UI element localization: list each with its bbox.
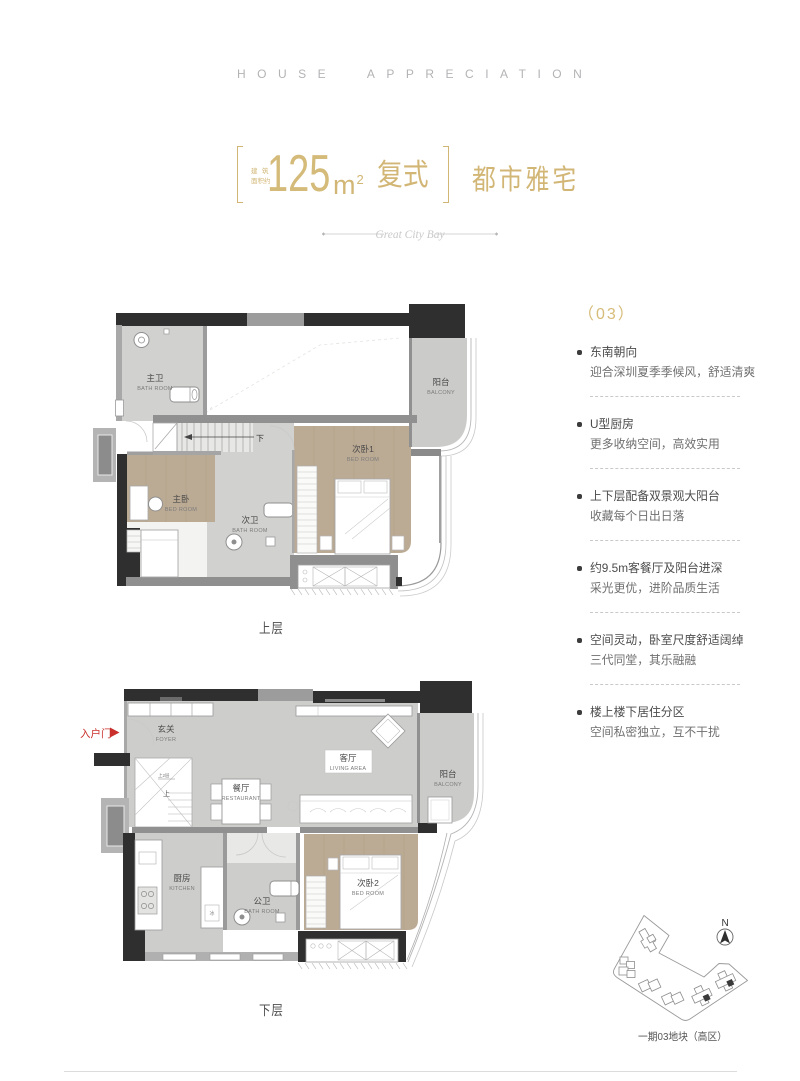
svg-text:Great City Bay: Great City Bay bbox=[375, 229, 445, 241]
svg-text:BATH ROOM: BATH ROOM bbox=[244, 909, 280, 915]
svg-text:入户门: 入户门 bbox=[80, 727, 112, 740]
svg-text:BALCONY: BALCONY bbox=[427, 390, 455, 396]
svg-text:上: 上 bbox=[163, 789, 170, 798]
svg-text:BALCONY: BALCONY bbox=[434, 782, 462, 788]
svg-text:N: N bbox=[722, 918, 729, 929]
svg-text:BED ROOM: BED ROOM bbox=[165, 507, 197, 513]
svg-text:阳台: 阳台 bbox=[432, 377, 449, 387]
svg-text:BATH ROOM: BATH ROOM bbox=[232, 528, 268, 534]
svg-text:BED ROOM: BED ROOM bbox=[352, 891, 384, 897]
svg-text:下: 下 bbox=[256, 434, 264, 443]
svg-text:餐厅: 餐厅 bbox=[232, 783, 250, 793]
svg-text:主卧: 主卧 bbox=[172, 494, 190, 504]
svg-text:玄关: 玄关 bbox=[157, 724, 175, 734]
svg-text:RESTAURANT: RESTAURANT bbox=[222, 796, 261, 802]
svg-text:阳台: 阳台 bbox=[439, 769, 456, 779]
svg-text:次卧1: 次卧1 bbox=[352, 444, 374, 454]
svg-text:厨房: 厨房 bbox=[173, 873, 190, 883]
svg-text:LIVING AREA: LIVING AREA bbox=[330, 766, 367, 772]
svg-text:冰: 冰 bbox=[209, 910, 214, 917]
svg-text:FOYER: FOYER bbox=[156, 737, 176, 743]
svg-text:BATH ROOM: BATH ROOM bbox=[137, 386, 173, 392]
svg-text:次卧2: 次卧2 bbox=[357, 878, 379, 888]
svg-text:KITCHEN: KITCHEN bbox=[169, 886, 195, 892]
svg-text:主卫: 主卫 bbox=[146, 373, 164, 383]
svg-text:次卫: 次卫 bbox=[241, 515, 259, 525]
svg-text:客厅: 客厅 bbox=[339, 753, 357, 763]
svg-text:上2层: 上2层 bbox=[158, 772, 170, 779]
svg-text:公卫: 公卫 bbox=[253, 896, 271, 906]
svg-text:BED ROOM: BED ROOM bbox=[347, 457, 379, 463]
